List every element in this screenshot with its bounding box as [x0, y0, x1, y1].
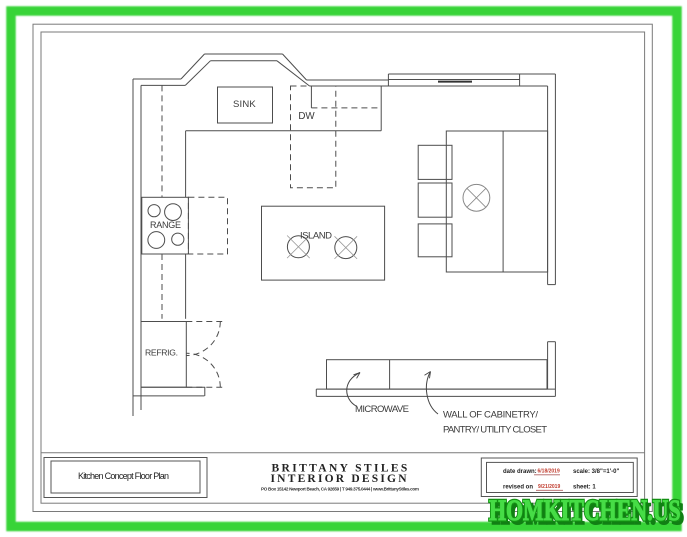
svg-text:HOMKITCHEN.US: HOMKITCHEN.US [489, 494, 681, 527]
svg-text:sheet: 1: sheet: 1 [573, 485, 596, 491]
svg-text:INTERIOR DESIGN: INTERIOR DESIGN [271, 473, 410, 485]
svg-text:RANGE: RANGE [150, 220, 181, 230]
svg-text:PO Box 15142 Newport Beach, CA: PO Box 15142 Newport Beach, CA 92659 | T… [261, 486, 419, 491]
svg-text:PANTRY/ UTILITY CLOSET: PANTRY/ UTILITY CLOSET [443, 425, 547, 436]
svg-text:REFRIG.: REFRIG. [145, 348, 178, 358]
svg-text:SINK: SINK [233, 99, 256, 110]
svg-text:WALL OF CABINETRY/: WALL OF CABINETRY/ [443, 410, 538, 421]
svg-text:MICROWAVE: MICROWAVE [355, 404, 409, 415]
svg-text:date drawn:: date drawn: [503, 469, 537, 475]
svg-text:DW: DW [298, 111, 315, 122]
svg-text:Kitchen Concept Floor Plan: Kitchen Concept Floor Plan [78, 471, 169, 481]
svg-text:9/21/2019: 9/21/2019 [538, 484, 560, 490]
svg-text:revised on: revised on [503, 485, 533, 491]
svg-text:ISLAND: ISLAND [300, 231, 332, 242]
svg-text:6/18/2019: 6/18/2019 [538, 469, 560, 475]
svg-text:scale: 3/8"=1'-0": scale: 3/8"=1'-0" [573, 469, 619, 475]
